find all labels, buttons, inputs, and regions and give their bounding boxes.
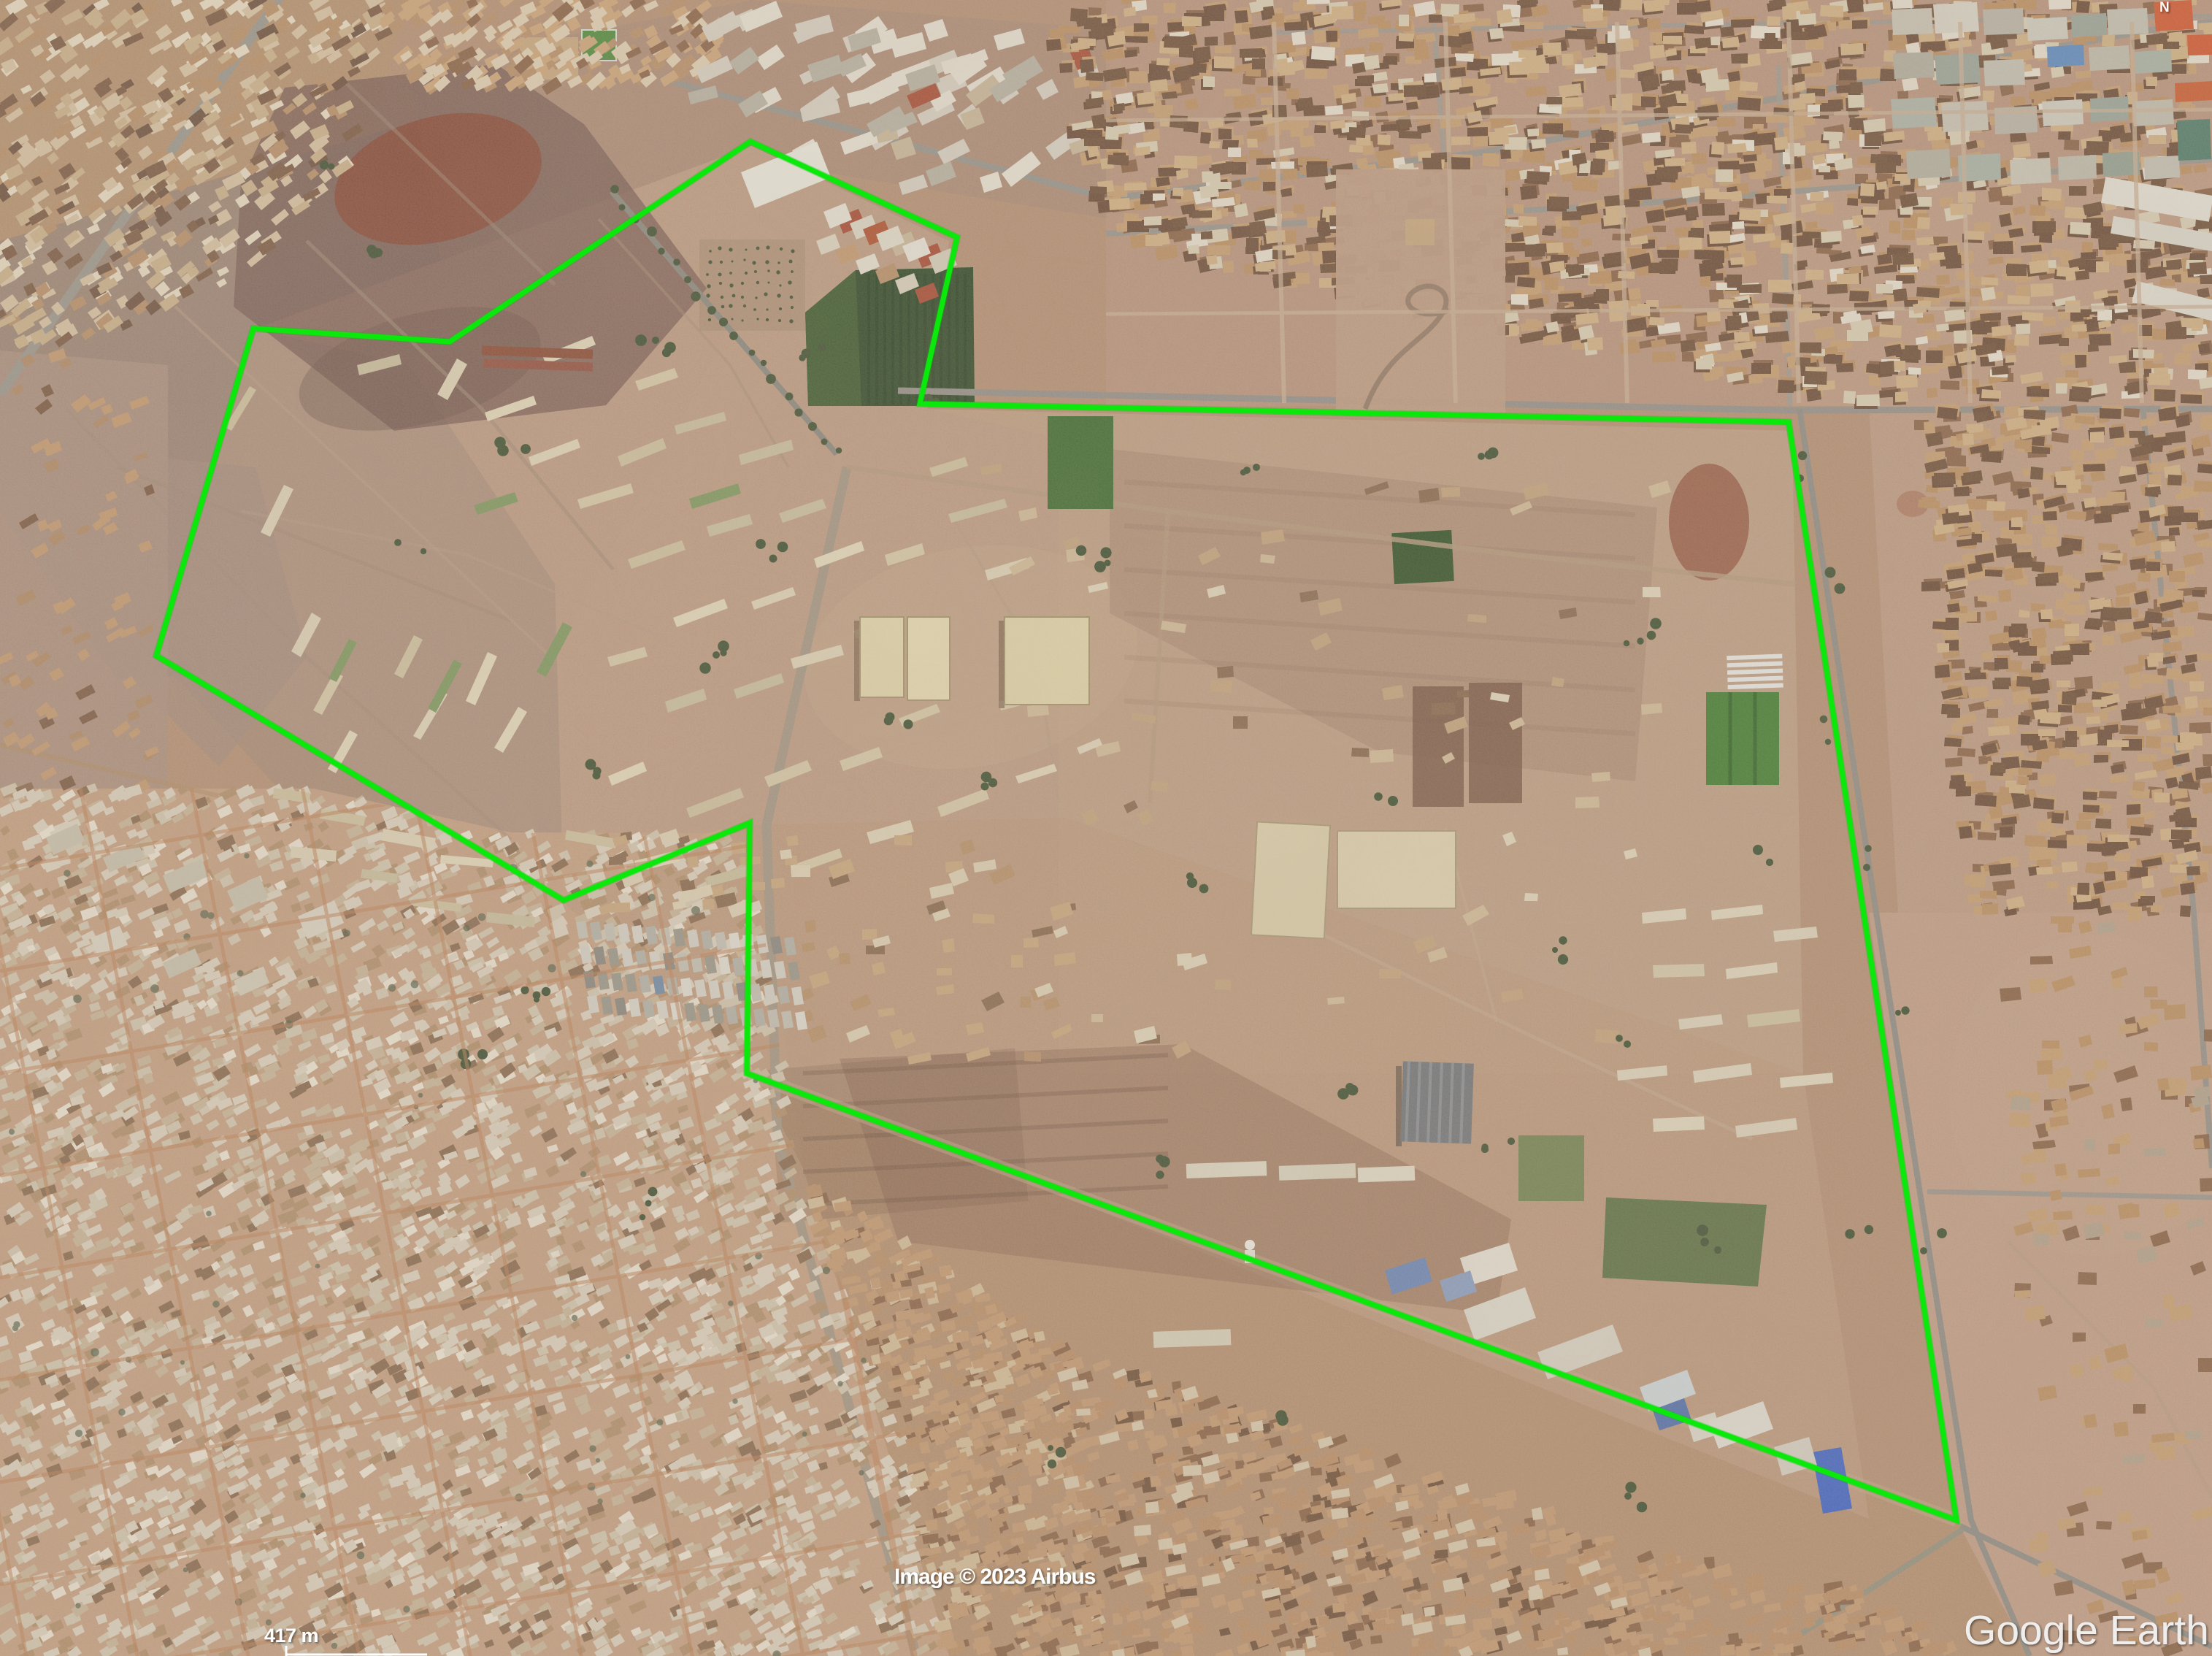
svg-text:Image © 2023 Airbus: Image © 2023 Airbus xyxy=(894,1565,1096,1589)
svg-text:Google Earth: Google Earth xyxy=(1964,1607,2209,1654)
svg-text:417 m: 417 m xyxy=(264,1625,318,1647)
svg-text:N: N xyxy=(2159,0,2170,15)
